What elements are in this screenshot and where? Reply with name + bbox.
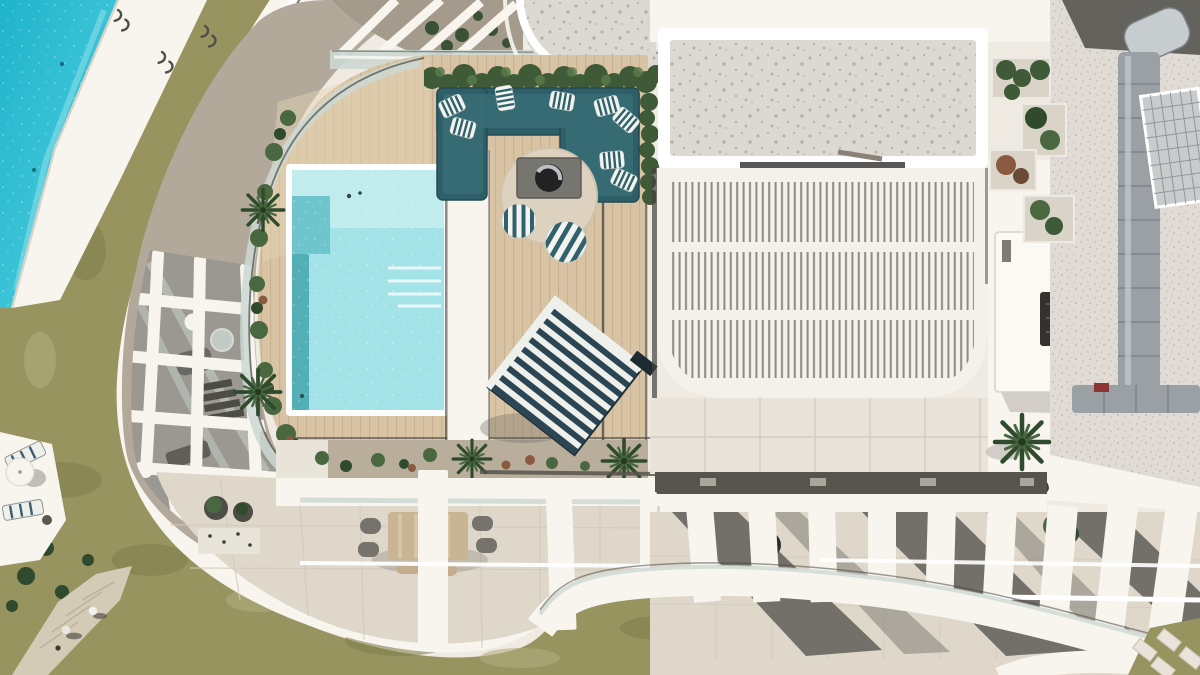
agave <box>602 439 645 482</box>
sink <box>1002 240 1011 262</box>
aerial-photo <box>0 0 1200 675</box>
round-table <box>211 329 233 351</box>
person <box>89 607 97 615</box>
striped-pouf <box>502 203 536 239</box>
red-object <box>1094 383 1109 392</box>
fire-pit-table <box>517 158 581 198</box>
planter-bed <box>276 439 648 482</box>
person <box>62 626 70 634</box>
louvered-roof <box>670 182 974 378</box>
slab-gap <box>740 162 905 168</box>
palm-tree <box>995 415 1049 469</box>
palm-tree <box>236 370 281 415</box>
rooftop-scene <box>0 0 1200 675</box>
pergola-edge-shadow <box>652 168 657 398</box>
side-table <box>42 515 52 525</box>
dog <box>55 645 60 650</box>
palm-tree <box>242 189 283 230</box>
